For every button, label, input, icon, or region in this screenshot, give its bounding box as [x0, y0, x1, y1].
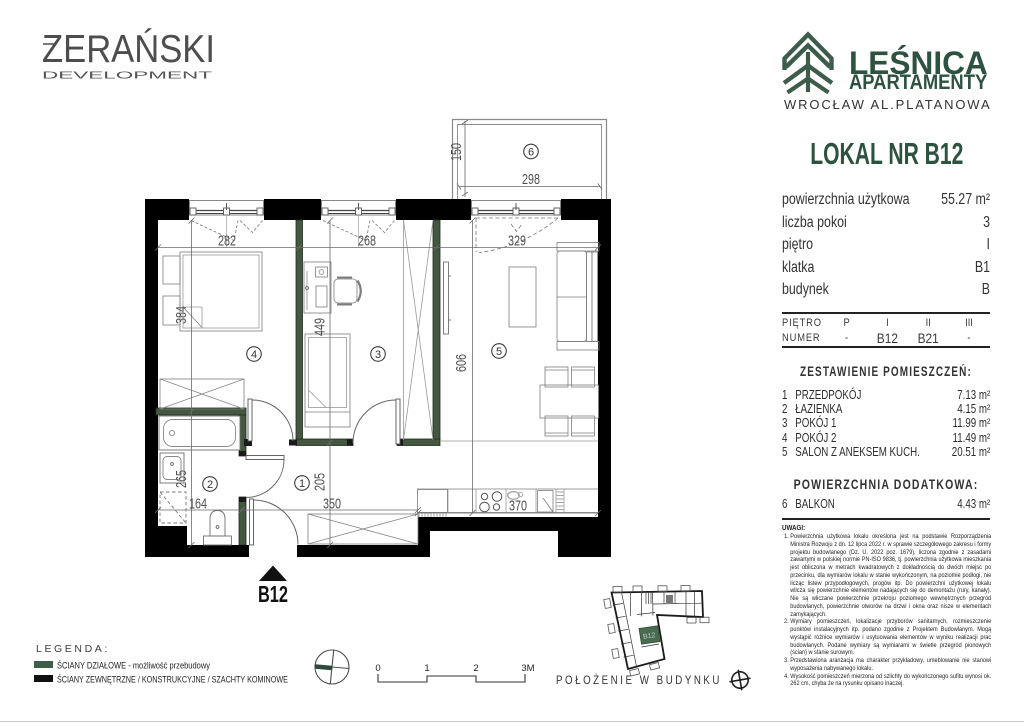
- svg-text:1: 1: [299, 478, 305, 490]
- svg-text:B12: B12: [258, 581, 288, 607]
- svg-text:3: 3: [375, 349, 381, 361]
- svg-text:ŚCIANY ZEWNĘTRZNE / KONSTRUKCY: ŚCIANY ZEWNĘTRZNE / KONSTRUKCYJNE / SZAC…: [57, 674, 288, 685]
- svg-text:282: 282: [218, 233, 236, 250]
- svg-text:329: 329: [508, 233, 526, 250]
- svg-text:205: 205: [312, 473, 329, 491]
- svg-text:268: 268: [358, 233, 376, 250]
- svg-text:265: 265: [173, 470, 190, 488]
- svg-text:2: 2: [207, 479, 213, 491]
- svg-text:370: 370: [509, 498, 527, 515]
- svg-text:164: 164: [189, 496, 207, 513]
- svg-text:3M: 3M: [521, 663, 534, 674]
- svg-text:150: 150: [448, 143, 465, 161]
- svg-text:298: 298: [522, 171, 540, 188]
- svg-text:ŚCIANY DZIAŁOWE - możliwość pr: ŚCIANY DZIAŁOWE - możliwość przebudowy: [57, 660, 211, 671]
- svg-text:6: 6: [528, 147, 534, 159]
- svg-text:384: 384: [173, 306, 190, 324]
- svg-text:5: 5: [496, 346, 502, 358]
- svg-text:350: 350: [323, 496, 341, 513]
- svg-text:4: 4: [251, 349, 257, 361]
- svg-text:0: 0: [375, 663, 380, 674]
- svg-text:449: 449: [312, 318, 329, 336]
- svg-text:LEGENDA:: LEGENDA:: [36, 643, 110, 655]
- svg-text:606: 606: [453, 354, 470, 372]
- svg-text:2: 2: [473, 663, 478, 674]
- svg-text:1: 1: [424, 663, 429, 674]
- svg-text:POŁOŻENIE W BUDYNKU: POŁOŻENIE W BUDYNKU: [556, 674, 722, 687]
